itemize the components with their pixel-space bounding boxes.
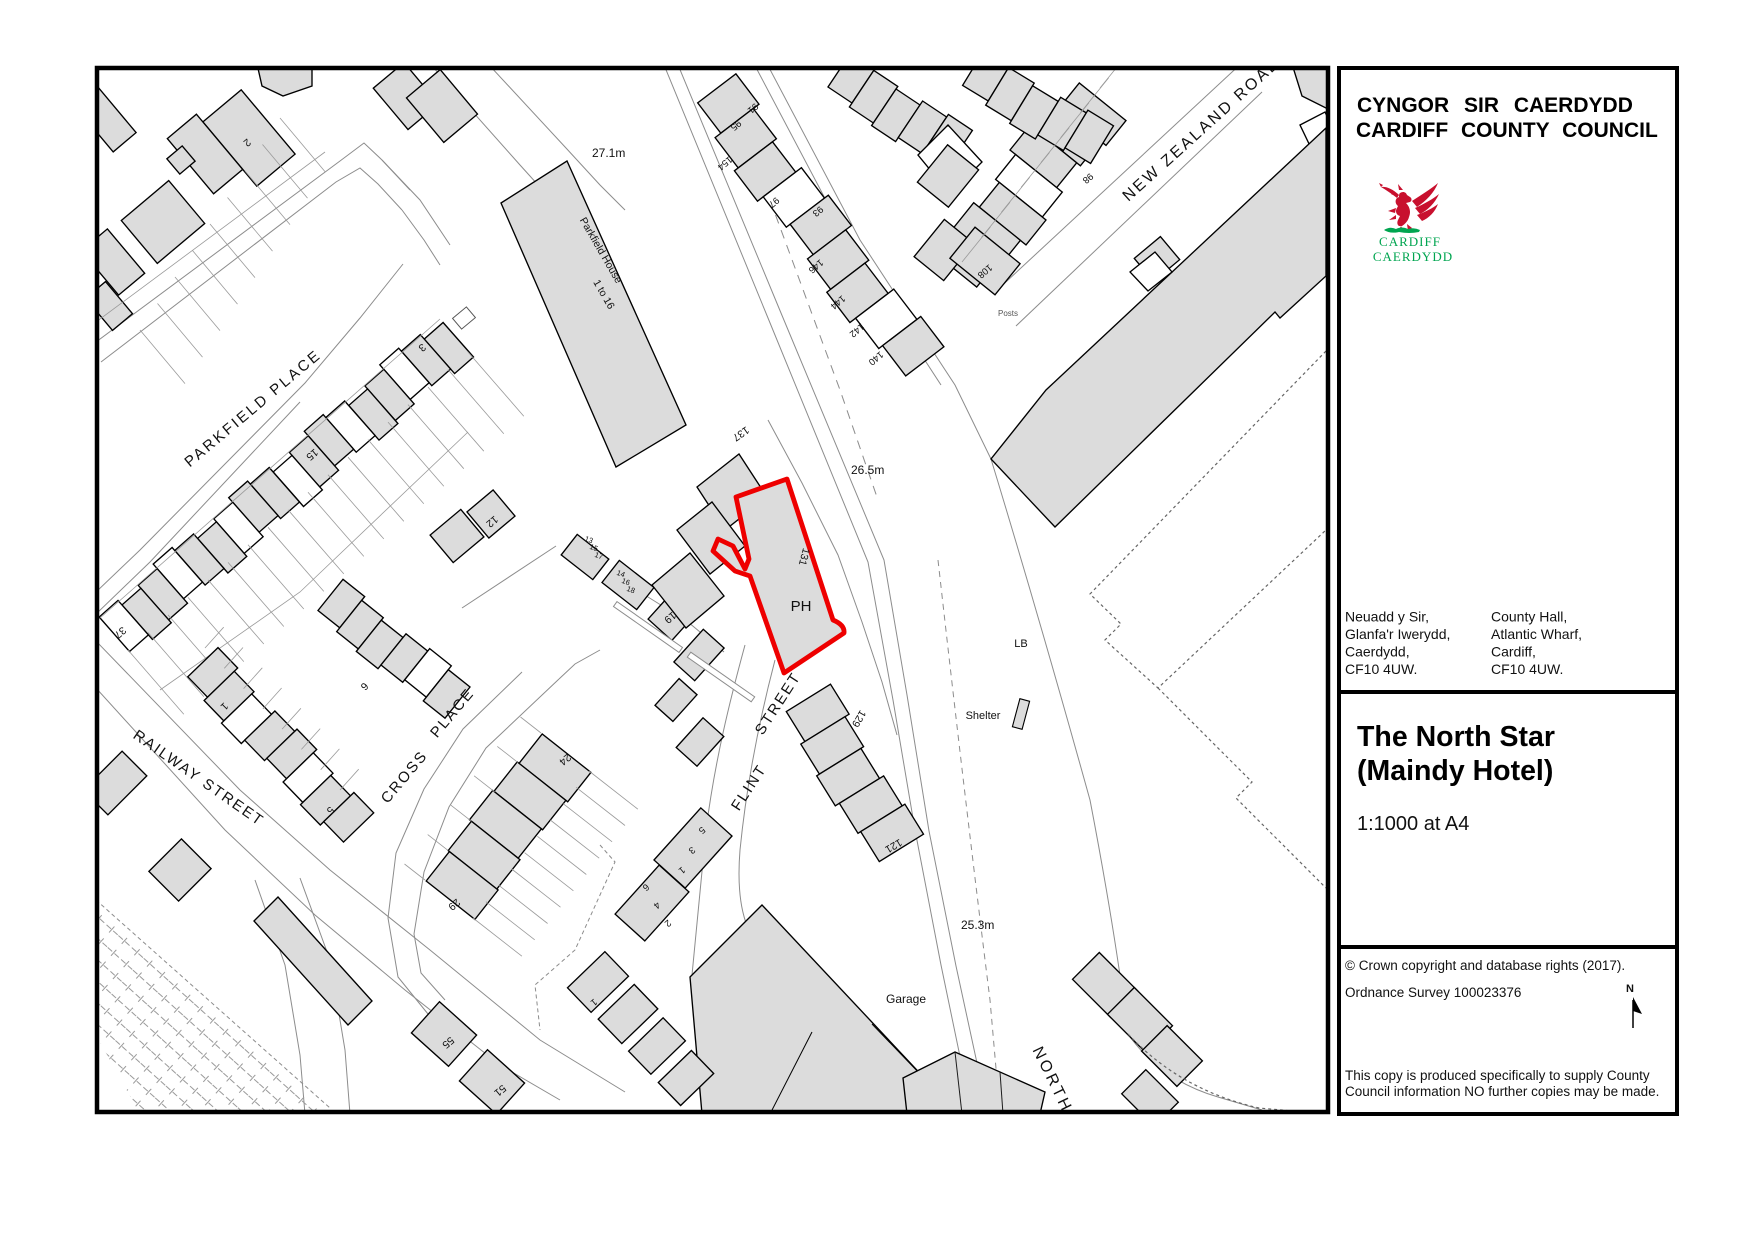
svg-text:129: 129 [849,708,868,729]
svg-text:27.1m: 27.1m [592,146,625,160]
svg-text:CARDIFF COUNTY COUNCIL: CARDIFF COUNTY COUNCIL [1356,119,1658,142]
svg-text:The North Star: The North Star [1357,721,1555,753]
svg-text:N: N [1626,983,1634,995]
svg-text:Posts: Posts [998,309,1018,318]
svg-text:137: 137 [730,424,751,444]
svg-text:NEW ZEALAND ROAD: NEW ZEALAND ROAD [1120,54,1285,205]
svg-text:© Crown copyright and database: © Crown copyright and database rights (2… [1345,958,1625,973]
svg-text:26.5m: 26.5m [851,463,884,477]
svg-text:Garage: Garage [886,992,926,1006]
svg-text:6: 6 [358,680,371,693]
svg-text:County Hall,: County Hall, [1491,609,1567,625]
svg-text:CAERDYDD: CAERDYDD [1373,249,1453,264]
svg-text:Neuadd y Sir,: Neuadd y Sir, [1345,609,1429,625]
svg-text:25.3m: 25.3m [961,918,994,932]
svg-text:CYNGOR SIR CAERDYDD: CYNGOR SIR CAERDYDD [1357,94,1633,117]
svg-text:Shelter: Shelter [966,710,1001,722]
svg-text:Ordnance Survey 100023376: Ordnance Survey 100023376 [1345,985,1521,1000]
svg-text:CARDIFF: CARDIFF [1379,234,1441,249]
svg-text:CF10 4UW.: CF10 4UW. [1491,661,1563,677]
svg-text:Glanfa'r Iwerydd,: Glanfa'r Iwerydd, [1345,626,1450,642]
svg-text:140: 140 [866,349,885,368]
svg-text:98: 98 [1080,170,1095,185]
svg-text:FLINT: FLINT [728,761,770,814]
svg-text:Cardiff,: Cardiff, [1491,644,1536,660]
svg-text:Atlantic Wharf,: Atlantic Wharf, [1491,626,1582,642]
svg-text:CF10 4UW.: CF10 4UW. [1345,661,1417,677]
svg-text:This copy is produced specific: This copy is produced specifically to su… [1345,1068,1650,1083]
svg-text:CROSS: CROSS [378,747,432,806]
svg-text:Council information NO further: Council information NO further copies ma… [1345,1084,1659,1099]
svg-text:LB: LB [1014,638,1027,650]
svg-text:Caerdydd,: Caerdydd, [1345,644,1410,660]
svg-text:PH: PH [791,598,812,615]
svg-text:(Maindy Hotel): (Maindy Hotel) [1357,755,1553,787]
svg-text:1:1000 at A4: 1:1000 at A4 [1357,813,1469,835]
